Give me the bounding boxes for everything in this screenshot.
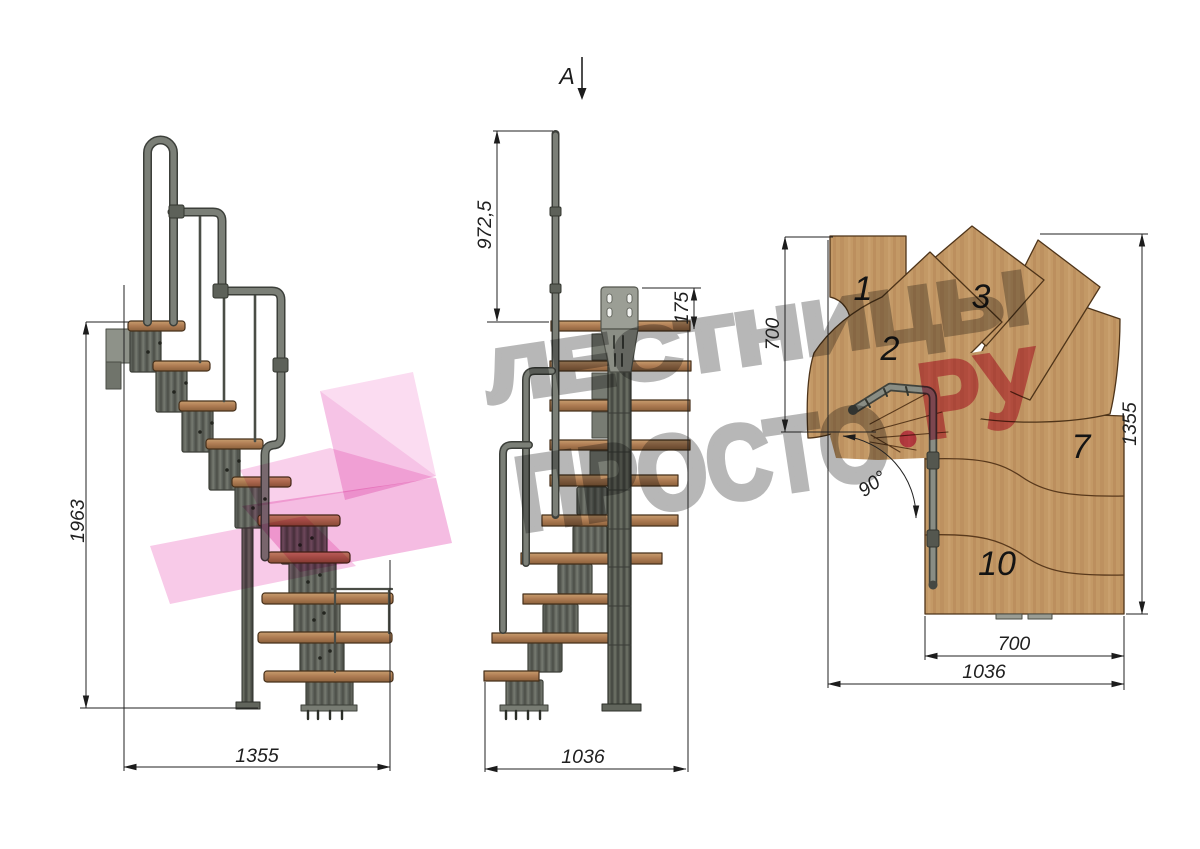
svg-text:700: 700 bbox=[998, 633, 1031, 655]
svg-text:РУ: РУ bbox=[911, 325, 1049, 462]
svg-text:7: 7 bbox=[1072, 428, 1092, 466]
svg-text:1355: 1355 bbox=[235, 745, 279, 767]
svg-text:1036: 1036 bbox=[962, 661, 1006, 683]
svg-text:972,5: 972,5 bbox=[474, 200, 496, 249]
svg-text:1355: 1355 bbox=[1119, 402, 1141, 446]
svg-text:1963: 1963 bbox=[67, 499, 89, 543]
svg-text:175: 175 bbox=[671, 292, 693, 325]
svg-text:1036: 1036 bbox=[561, 746, 605, 768]
svg-text:700: 700 bbox=[762, 318, 784, 351]
svg-text:10: 10 bbox=[978, 545, 1016, 583]
svg-text:A: A bbox=[557, 63, 574, 89]
